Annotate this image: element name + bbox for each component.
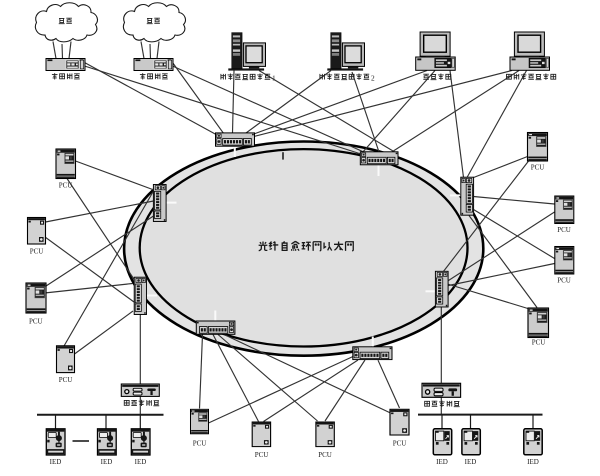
svg-text:PCU: PCU: [30, 248, 44, 256]
svg-text:PCU: PCU: [532, 339, 546, 347]
svg-text:1: 1: [272, 73, 276, 82]
svg-text:PCU: PCU: [193, 440, 207, 448]
svg-text:PCU: PCU: [393, 440, 407, 448]
svg-text:PCU: PCU: [531, 164, 545, 172]
svg-text:IED: IED: [101, 458, 113, 466]
svg-text:IED: IED: [436, 458, 448, 466]
svg-text:PCU: PCU: [59, 182, 73, 190]
svg-text:IED: IED: [50, 458, 62, 466]
svg-text:PCU: PCU: [318, 451, 332, 459]
svg-text:2: 2: [371, 73, 375, 82]
svg-text:PCU: PCU: [557, 226, 571, 234]
svg-text:PCU: PCU: [557, 277, 571, 285]
svg-text:IED: IED: [527, 458, 539, 466]
svg-text:IED: IED: [465, 458, 477, 466]
svg-text:PCU: PCU: [255, 451, 269, 459]
svg-text:PCU: PCU: [59, 376, 73, 384]
svg-text:IED: IED: [135, 458, 147, 466]
svg-text:PCU: PCU: [29, 318, 43, 326]
